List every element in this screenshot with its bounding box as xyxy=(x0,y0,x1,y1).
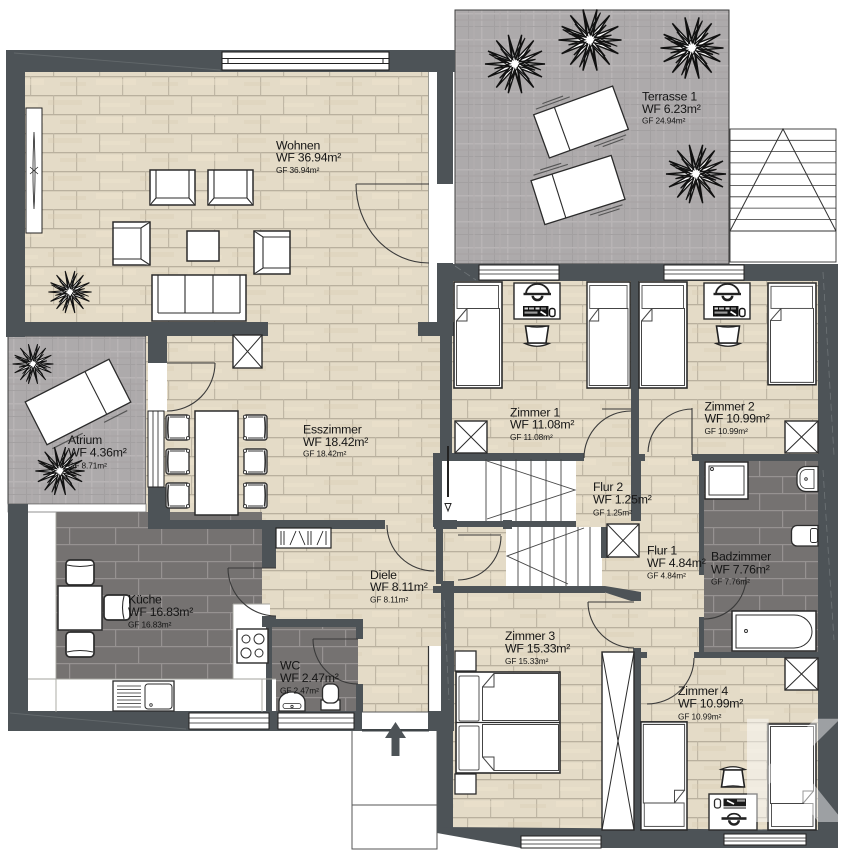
svg-text:WF 6.23m²: WF 6.23m² xyxy=(642,102,701,116)
svg-text:WF 36.94m²: WF 36.94m² xyxy=(276,151,341,165)
svg-text:GF 10.99m²: GF 10.99m² xyxy=(678,712,722,722)
svg-text:GF 2.47m²: GF 2.47m² xyxy=(280,686,319,696)
svg-text:WF 8.11m²: WF 8.11m² xyxy=(370,580,428,594)
svg-text:WF 1.25m²: WF 1.25m² xyxy=(593,493,652,507)
svg-text:GF 8.11m²: GF 8.11m² xyxy=(370,595,408,605)
svg-text:WF 2.47m²: WF 2.47m² xyxy=(280,671,339,685)
svg-text:GF 15.33m²: GF 15.33m² xyxy=(505,656,549,666)
svg-text:WF 16.83m²: WF 16.83m² xyxy=(128,605,193,619)
svg-text:K: K xyxy=(737,686,845,854)
svg-text:WF 10.99m²: WF 10.99m² xyxy=(705,412,770,426)
svg-text:GF 11.08m²: GF 11.08m² xyxy=(510,432,553,442)
svg-text:Badzimmer: Badzimmer xyxy=(711,550,771,564)
svg-text:WF 7.76m²: WF 7.76m² xyxy=(711,563,770,577)
svg-text:WF 4.84m²: WF 4.84m² xyxy=(647,556,706,570)
svg-text:WF 4.36m²: WF 4.36m² xyxy=(68,446,127,460)
svg-text:GF 16.83m²: GF 16.83m² xyxy=(128,620,172,630)
svg-text:GF 10.99m²: GF 10.99m² xyxy=(705,426,749,436)
svg-text:GF 18.42m²: GF 18.42m² xyxy=(303,449,347,459)
svg-text:WF 10.99m²: WF 10.99m² xyxy=(678,697,743,711)
svg-text:GF 1.25m²: GF 1.25m² xyxy=(593,508,632,518)
svg-text:GF 36.94m²: GF 36.94m² xyxy=(276,165,320,175)
svg-text:GF 8.71m²: GF 8.71m² xyxy=(68,461,107,471)
svg-text:WF 15.33m²: WF 15.33m² xyxy=(505,642,570,656)
svg-text:WF 11.08m²: WF 11.08m² xyxy=(510,418,574,432)
svg-text:WF 18.42m²: WF 18.42m² xyxy=(303,435,368,449)
svg-text:GF 24.94m²: GF 24.94m² xyxy=(642,116,686,126)
svg-text:GF 4.84m²: GF 4.84m² xyxy=(647,571,686,581)
svg-text:GF 7.76m²: GF 7.76m² xyxy=(711,577,750,587)
